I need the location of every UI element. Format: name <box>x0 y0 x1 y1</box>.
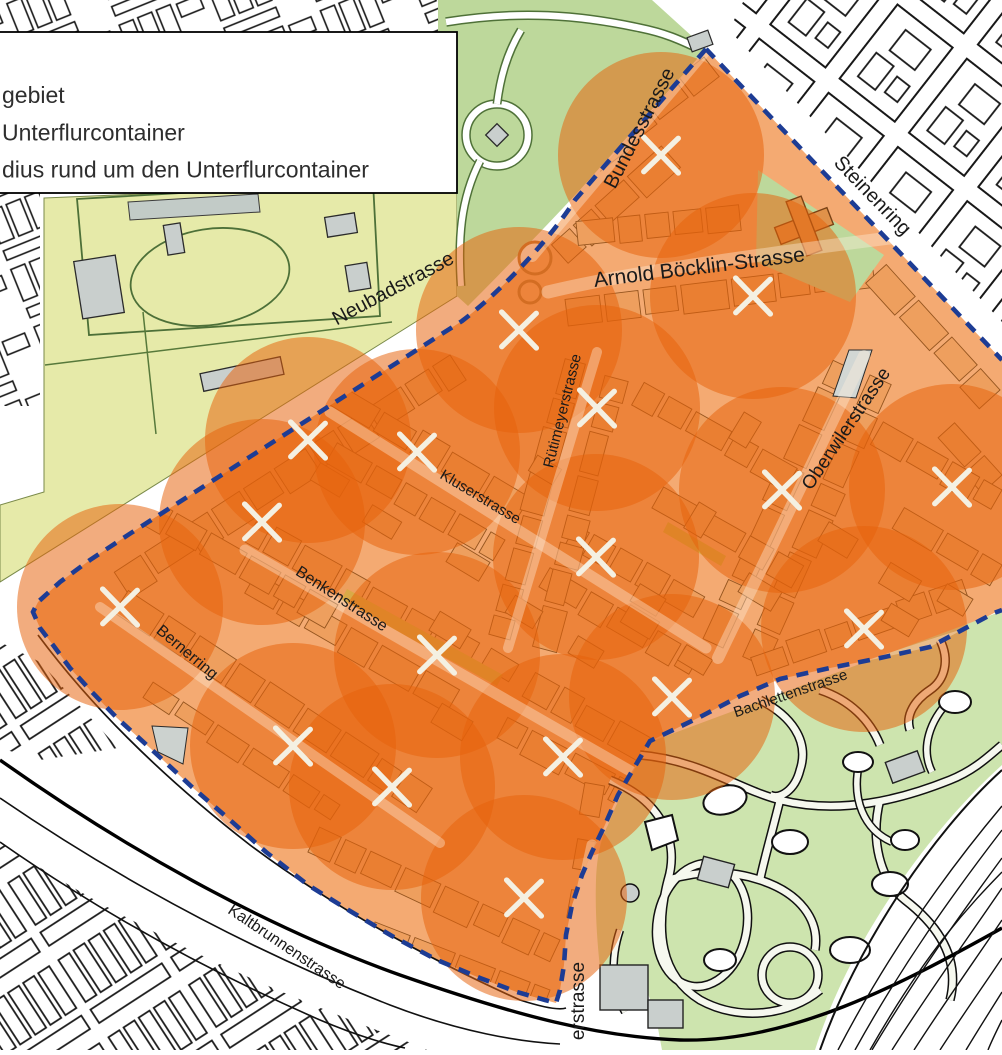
svg-text:erstrasse: erstrasse <box>568 962 589 1040</box>
svg-text:Unterflurcontainer: Unterflurcontainer <box>2 120 185 146</box>
svg-text:gebiet: gebiet <box>2 82 65 108</box>
svg-text:dius rund um den Unterflurcont: dius rund um den Unterflurcontainer <box>2 157 369 183</box>
